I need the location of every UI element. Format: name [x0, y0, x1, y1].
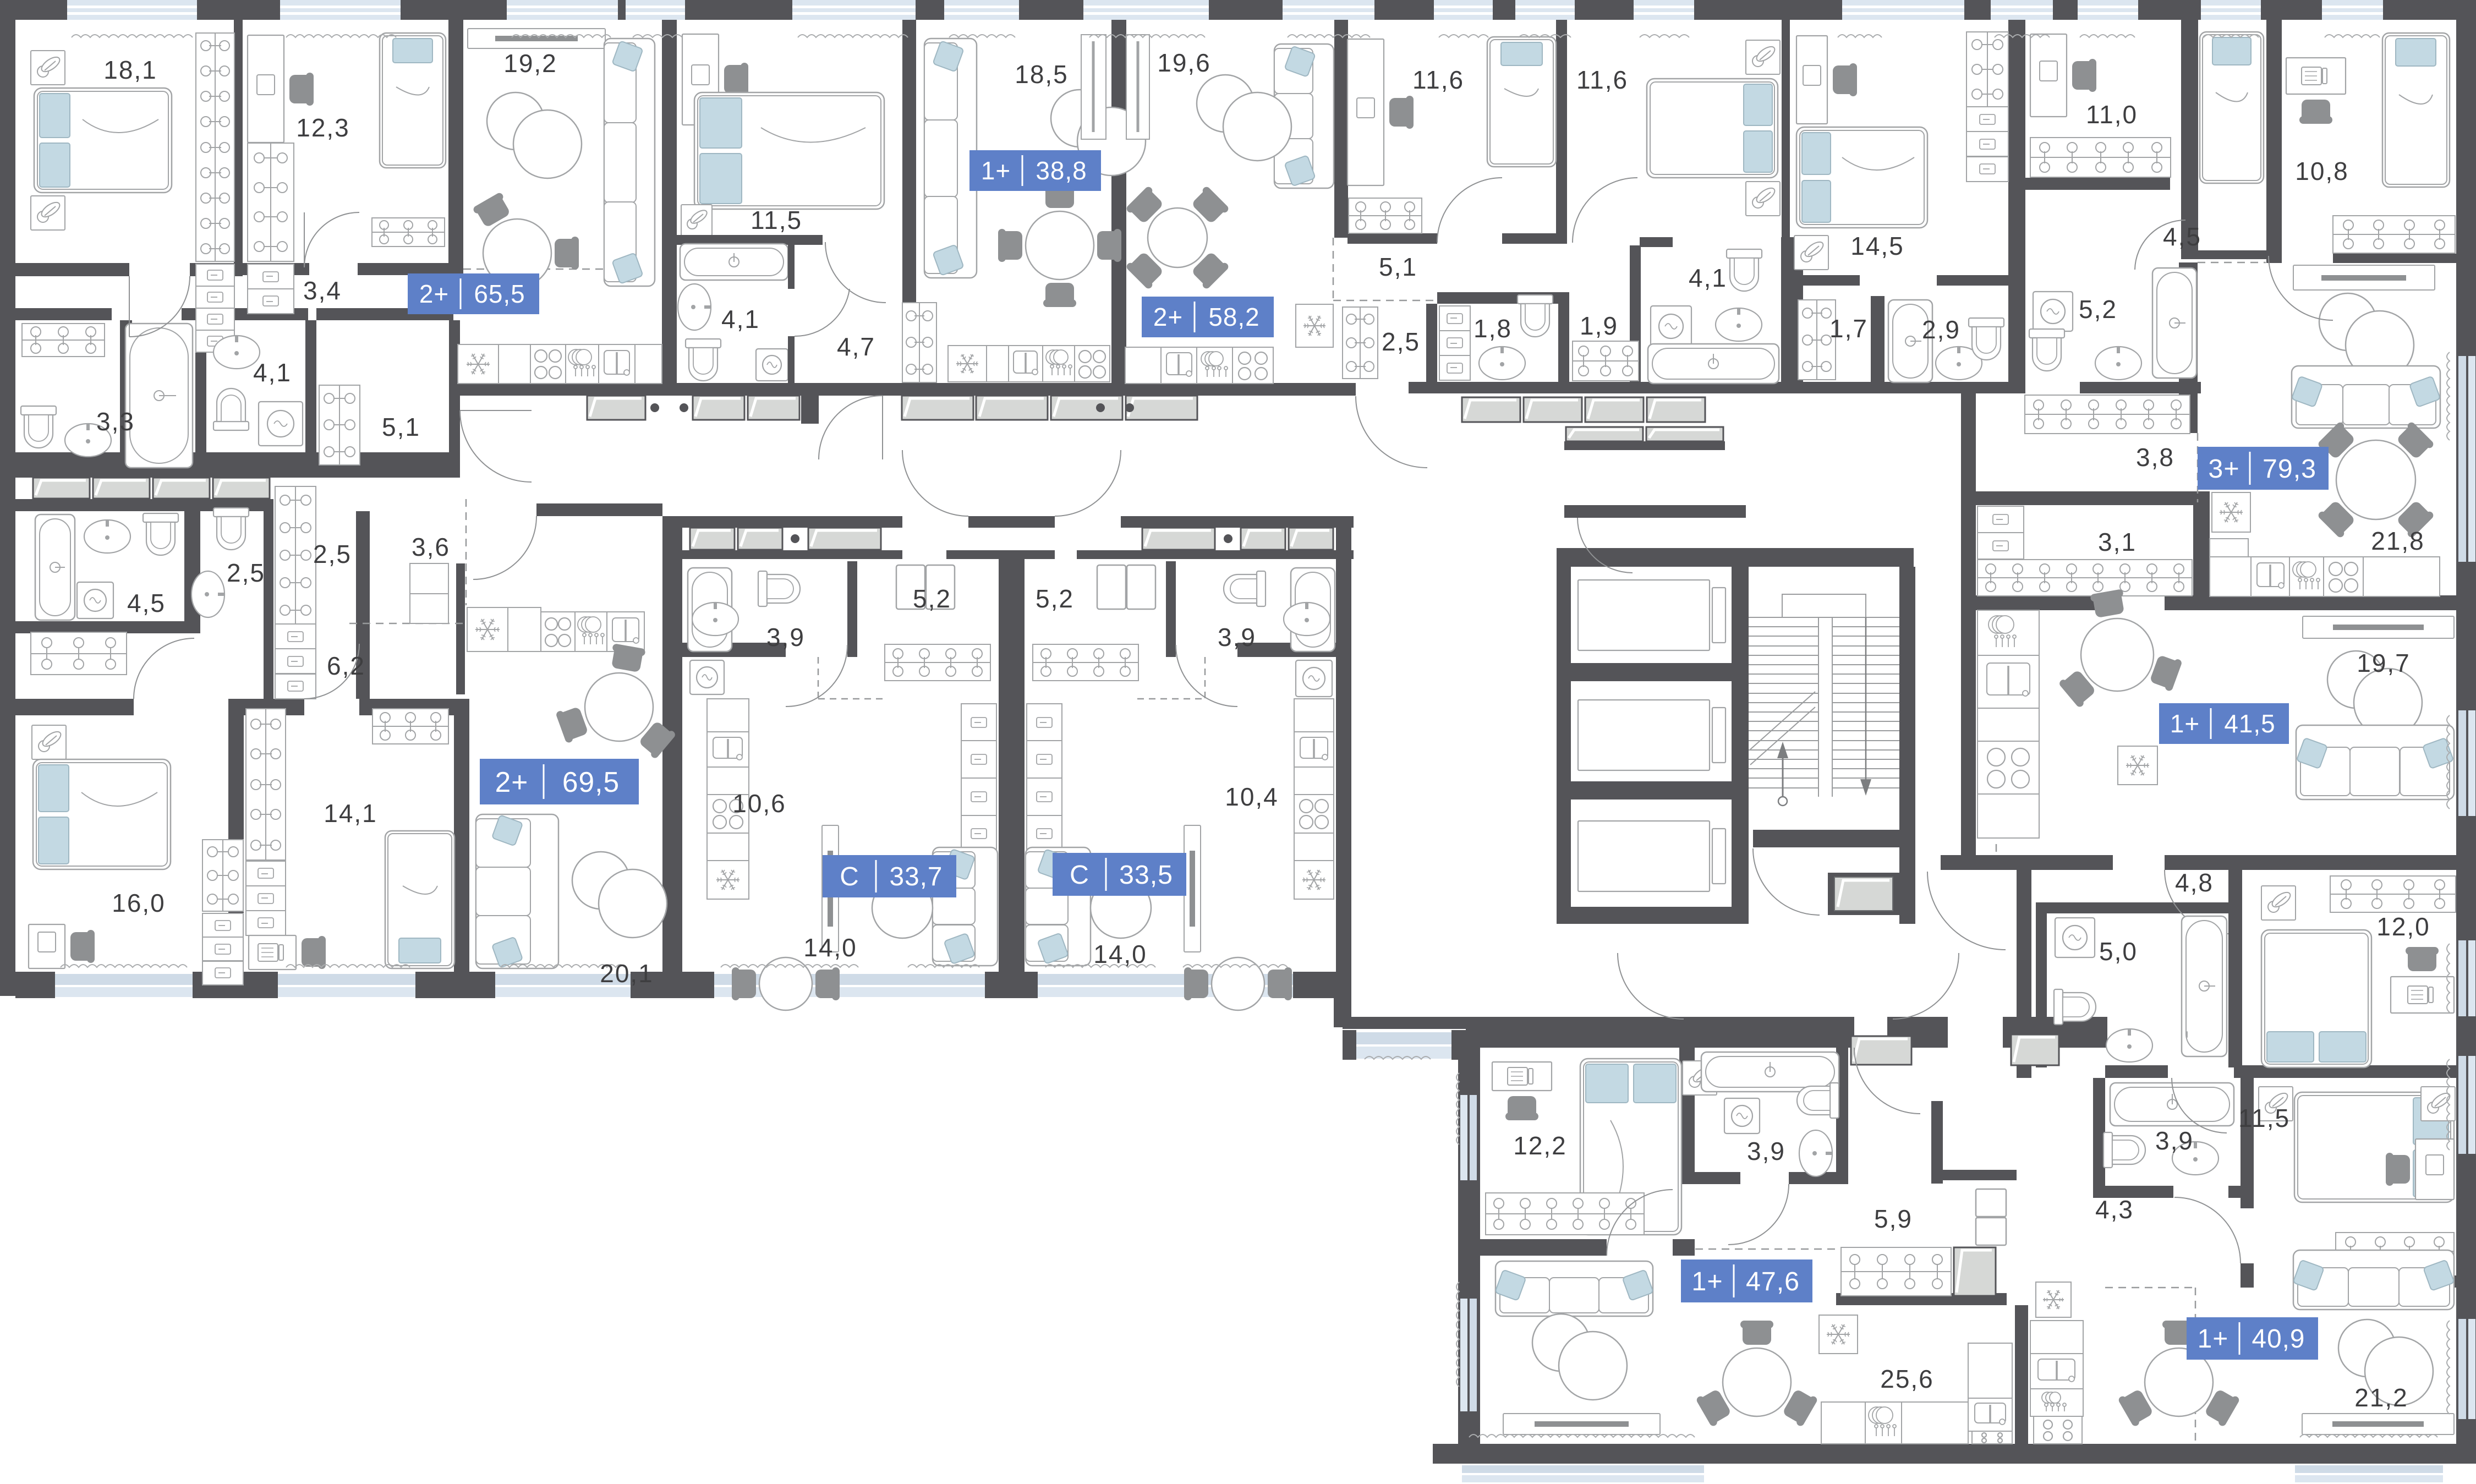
svg-text:79,3: 79,3: [2263, 454, 2316, 484]
svg-text:5,9: 5,9: [1874, 1204, 1913, 1233]
svg-text:C: C: [1070, 860, 1089, 890]
svg-text:14,5: 14,5: [1850, 232, 1904, 260]
svg-text:5,2: 5,2: [913, 584, 951, 613]
svg-text:4,5: 4,5: [2163, 222, 2201, 251]
svg-text:20,1: 20,1: [600, 959, 654, 988]
svg-text:19,2: 19,2: [503, 49, 557, 78]
svg-text:3,4: 3,4: [303, 276, 342, 305]
svg-text:3,3: 3,3: [96, 407, 135, 436]
svg-text:3,9: 3,9: [2155, 1126, 2194, 1155]
svg-text:14,1: 14,1: [324, 799, 377, 828]
svg-text:18,1: 18,1: [103, 56, 157, 84]
svg-text:5,2: 5,2: [2079, 295, 2117, 324]
svg-text:69,5: 69,5: [562, 766, 620, 798]
svg-text:5,1: 5,1: [1379, 253, 1417, 281]
svg-text:4,1: 4,1: [721, 305, 760, 333]
svg-text:1+: 1+: [2170, 709, 2200, 738]
svg-text:11,5: 11,5: [2238, 1104, 2290, 1132]
svg-text:1,7: 1,7: [1829, 314, 1868, 343]
svg-text:47,6: 47,6: [1746, 1267, 1800, 1296]
svg-text:58,2: 58,2: [1208, 303, 1259, 331]
svg-text:3,9: 3,9: [1747, 1137, 1785, 1165]
svg-text:19,7: 19,7: [2357, 649, 2411, 677]
svg-text:65,5: 65,5: [474, 280, 525, 308]
svg-text:12,2: 12,2: [1513, 1131, 1567, 1160]
svg-text:4,3: 4,3: [2095, 1195, 2134, 1224]
svg-text:1+: 1+: [2198, 1324, 2228, 1354]
svg-text:14,0: 14,0: [1093, 940, 1147, 968]
svg-text:5,2: 5,2: [1036, 584, 1074, 613]
svg-text:33,5: 33,5: [1119, 860, 1173, 890]
svg-text:1+: 1+: [1691, 1267, 1723, 1296]
svg-text:3+: 3+: [2208, 454, 2239, 484]
svg-text:2+: 2+: [1153, 303, 1183, 331]
svg-text:2,5: 2,5: [313, 540, 352, 568]
svg-text:21,2: 21,2: [2354, 1383, 2408, 1412]
svg-text:10,4: 10,4: [1225, 782, 1279, 811]
svg-text:12,3: 12,3: [296, 113, 350, 142]
svg-text:3,9: 3,9: [766, 623, 805, 651]
svg-text:18,5: 18,5: [1015, 60, 1069, 89]
svg-text:4,8: 4,8: [2175, 868, 2214, 897]
svg-text:C: C: [840, 862, 859, 891]
svg-text:33,7: 33,7: [890, 862, 943, 891]
svg-text:2,9: 2,9: [1922, 315, 1960, 344]
svg-text:2+: 2+: [495, 766, 529, 798]
svg-text:2+: 2+: [419, 280, 449, 308]
svg-text:11,6: 11,6: [1412, 65, 1464, 94]
svg-text:10,6: 10,6: [732, 789, 786, 818]
svg-text:11,0: 11,0: [2086, 100, 2138, 129]
svg-text:16,0: 16,0: [112, 889, 166, 917]
svg-text:19,6: 19,6: [1157, 48, 1211, 77]
svg-text:5,0: 5,0: [2099, 937, 2138, 966]
svg-text:4,1: 4,1: [253, 358, 292, 387]
svg-text:21,8: 21,8: [2371, 527, 2425, 555]
svg-text:38,8: 38,8: [1036, 156, 1087, 185]
svg-text:2,5: 2,5: [1382, 327, 1420, 356]
svg-text:25,6: 25,6: [1880, 1365, 1934, 1393]
svg-text:1+: 1+: [981, 156, 1011, 185]
svg-text:10,8: 10,8: [2295, 157, 2349, 185]
svg-text:14,0: 14,0: [803, 933, 857, 962]
svg-text:4,1: 4,1: [1689, 264, 1727, 292]
svg-text:2,5: 2,5: [227, 558, 265, 587]
svg-text:3,9: 3,9: [1218, 623, 1256, 651]
svg-text:12,0: 12,0: [2376, 912, 2430, 941]
svg-text:1,8: 1,8: [1473, 314, 1512, 343]
svg-text:11,5: 11,5: [751, 206, 802, 234]
svg-text:11,6: 11,6: [1576, 65, 1628, 94]
svg-text:5,1: 5,1: [382, 413, 420, 441]
svg-text:4,5: 4,5: [127, 589, 166, 617]
svg-text:41,5: 41,5: [2224, 709, 2275, 738]
svg-text:3,8: 3,8: [2136, 443, 2174, 472]
svg-text:3,1: 3,1: [2098, 528, 2137, 556]
svg-text:1,9: 1,9: [1580, 311, 1618, 340]
svg-text:40,9: 40,9: [2252, 1324, 2305, 1354]
svg-text:6,2: 6,2: [327, 651, 365, 680]
svg-text:4,7: 4,7: [837, 332, 875, 361]
svg-text:3,6: 3,6: [412, 533, 450, 561]
